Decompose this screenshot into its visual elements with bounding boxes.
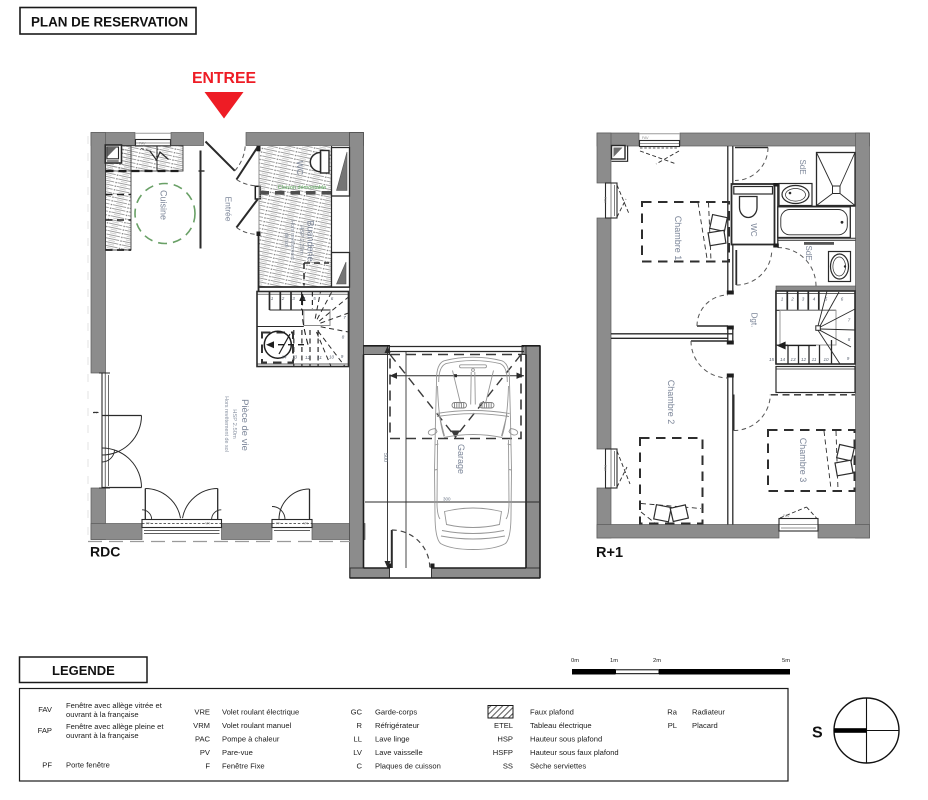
svg-text:Faux plafond: Faux plafond — [530, 708, 574, 717]
svg-text:FAP: FAP — [38, 726, 52, 735]
svg-text:5: 5 — [825, 296, 828, 301]
svg-text:1m: 1m — [610, 658, 618, 664]
svg-text:FAV: FAV — [603, 197, 607, 204]
svg-text:8: 8 — [848, 337, 851, 342]
svg-text:HSP 2.20m: HSP 2.20m — [298, 225, 304, 255]
svg-text:R+1: R+1 — [596, 545, 623, 561]
svg-text:HSFP: HSFP — [493, 748, 513, 757]
svg-text:S: S — [812, 725, 823, 742]
svg-text:PF: PF — [42, 761, 52, 770]
svg-text:8: 8 — [342, 334, 345, 339]
svg-text:5: 5 — [313, 296, 316, 301]
svg-text:Volet roulant manuel: Volet roulant manuel — [222, 721, 292, 730]
svg-text:ENTREE: ENTREE — [192, 70, 256, 87]
svg-text:Chambre 2: Chambre 2 — [666, 380, 676, 425]
svg-text:10: 10 — [823, 357, 829, 362]
svg-text:PV: PV — [200, 748, 211, 757]
svg-text:9: 9 — [847, 356, 850, 361]
svg-text:12: 12 — [305, 355, 311, 360]
svg-text:2: 2 — [281, 296, 285, 301]
svg-text:HSP: HSP — [497, 735, 513, 744]
svg-text:VRE: VRE — [194, 708, 210, 717]
svg-text:11: 11 — [317, 355, 322, 360]
svg-text:VRM: VRM — [193, 721, 210, 730]
svg-text:Hauteur sous plafond: Hauteur sous plafond — [530, 735, 602, 744]
svg-text:Radiateur: Radiateur — [692, 708, 725, 717]
svg-text:PL: PL — [668, 721, 677, 730]
svg-text:Garde-corps: Garde-corps — [375, 708, 417, 717]
svg-text:FAV: FAV — [603, 465, 607, 472]
svg-text:FAV: FAV — [783, 514, 790, 518]
svg-text:Sèche serviettes: Sèche serviettes — [530, 762, 586, 771]
svg-text:Fenêtre Fixe: Fenêtre Fixe — [222, 762, 265, 771]
svg-text:SdE: SdE — [798, 159, 807, 174]
svg-text:14: 14 — [780, 357, 786, 362]
svg-text:5m: 5m — [782, 658, 790, 664]
svg-text:11: 11 — [812, 357, 817, 362]
svg-text:SdE: SdE — [804, 245, 813, 260]
svg-text:6: 6 — [331, 296, 334, 301]
svg-text:3: 3 — [292, 296, 295, 301]
svg-text:Pompe à chaleur: Pompe à chaleur — [222, 735, 280, 744]
svg-text:PLAN DE RESERVATION: PLAN DE RESERVATION — [31, 15, 188, 30]
svg-text:6: 6 — [841, 296, 844, 301]
svg-text:Porte fenêtre: Porte fenêtre — [66, 761, 110, 770]
svg-text:2: 2 — [790, 296, 794, 301]
svg-text:Lave vaisselle: Lave vaisselle — [375, 748, 423, 757]
svg-text:Fenêtre avec allège vitrée et: Fenêtre avec allège vitrée et — [66, 701, 163, 710]
svg-text:Réfrigérateur: Réfrigérateur — [375, 721, 420, 730]
svg-text:ouvrant à la française: ouvrant à la française — [66, 710, 139, 719]
svg-text:15: 15 — [769, 357, 775, 362]
svg-text:2m: 2m — [653, 658, 661, 664]
svg-text:Dgt.: Dgt. — [750, 313, 759, 328]
svg-text:13: 13 — [292, 355, 298, 360]
svg-text:Hauteur sous faux plafond: Hauteur sous faux plafond — [530, 748, 619, 757]
svg-text:14: 14 — [281, 355, 287, 360]
svg-text:de sol: de sol — [283, 233, 289, 247]
svg-text:C: C — [357, 762, 363, 771]
svg-text:7: 7 — [848, 318, 851, 323]
svg-text:Pièce de vie: Pièce de vie — [239, 399, 250, 451]
svg-text:Placard: Placard — [692, 721, 718, 730]
svg-text:Fenêtre avec allège pleine et: Fenêtre avec allège pleine et — [66, 722, 164, 731]
svg-text:Garage: Garage — [456, 444, 466, 474]
svg-text:10: 10 — [329, 355, 335, 360]
svg-text:PF: PF — [276, 522, 281, 526]
svg-text:1: 1 — [271, 296, 274, 301]
svg-text:Pare-vue: Pare-vue — [222, 748, 253, 757]
svg-text:300: 300 — [443, 497, 451, 502]
svg-text:ETEL: ETEL — [494, 721, 513, 730]
svg-text:VR: VR — [205, 522, 210, 526]
svg-text:Plaques de cuisson: Plaques de cuisson — [375, 762, 441, 771]
svg-text:Tableau électrique: Tableau électrique — [530, 721, 592, 730]
svg-text:4: 4 — [303, 296, 306, 301]
svg-text:13: 13 — [790, 357, 796, 362]
svg-text:FAV: FAV — [38, 705, 53, 714]
svg-text:Lave linge: Lave linge — [375, 735, 410, 744]
svg-text:Hors revêtement de sol: Hors revêtement de sol — [223, 396, 229, 452]
svg-text:ouvrant à la française: ouvrant à la française — [66, 731, 139, 740]
svg-text:GC: GC — [351, 708, 363, 717]
svg-text:Cuisine: Cuisine — [159, 190, 169, 220]
svg-text:Chambre 1: Chambre 1 — [673, 216, 683, 261]
svg-text:LV: LV — [353, 748, 363, 757]
svg-text:Buanderie: Buanderie — [306, 220, 316, 261]
svg-text:PF: PF — [146, 522, 151, 526]
svg-text:3: 3 — [802, 296, 805, 301]
svg-text:VR: VR — [303, 522, 308, 526]
svg-text:SS: SS — [503, 762, 513, 771]
svg-text:FAV: FAV — [139, 142, 146, 146]
svg-text:Ra: Ra — [667, 708, 677, 717]
svg-text:F: F — [205, 762, 210, 771]
svg-text:LL: LL — [354, 735, 362, 744]
svg-text:LEGENDE: LEGENDE — [52, 663, 115, 678]
svg-text:4: 4 — [813, 296, 816, 301]
svg-text:1: 1 — [781, 296, 784, 301]
svg-text:R: R — [357, 721, 363, 730]
svg-text:RDC: RDC — [90, 544, 120, 560]
svg-text:Cloison démontable: Cloison démontable — [278, 185, 327, 191]
svg-text:Volet roulant électrique: Volet roulant électrique — [222, 708, 299, 717]
svg-text:500: 500 — [382, 453, 388, 462]
svg-text:9: 9 — [341, 354, 344, 359]
svg-text:WC: WC — [749, 223, 758, 237]
svg-text:7: 7 — [343, 315, 346, 320]
svg-text:0m: 0m — [571, 658, 579, 664]
svg-text:Chambre 3: Chambre 3 — [798, 438, 808, 483]
svg-text:Entrée: Entrée — [224, 196, 234, 221]
svg-text:12: 12 — [801, 357, 807, 362]
svg-text:HSP 2.50m: HSP 2.50m — [231, 409, 237, 439]
svg-text:PAC: PAC — [195, 735, 211, 744]
svg-text:WC: WC — [295, 161, 305, 175]
svg-text:FAV: FAV — [642, 136, 649, 140]
